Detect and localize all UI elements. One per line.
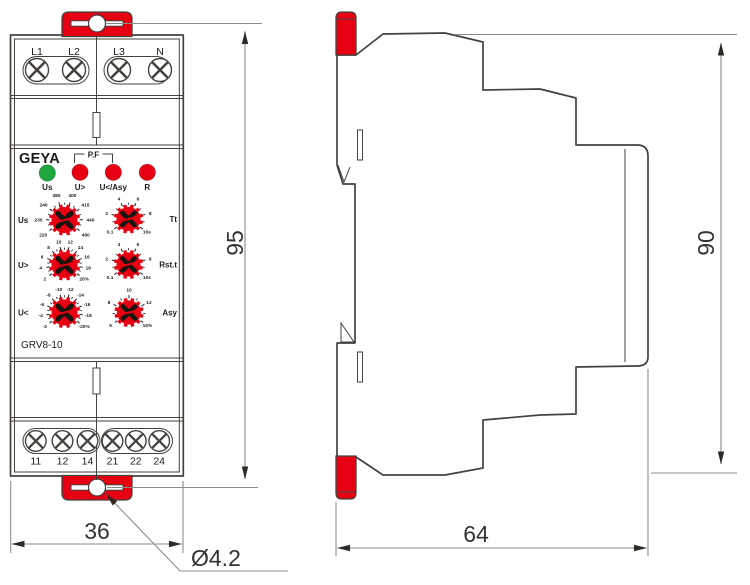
dial-scale-value: -18 [85,313,92,319]
dial-scale-value: 8 [108,300,111,306]
dial-label: U< [18,308,29,317]
terminal-label: 14 [82,456,94,468]
led-label: Us [42,183,53,192]
dim-value-95: 95 [222,230,248,256]
front-view-relay: L1L2L3N GEYA P.F UsU>U</AsyR 22023024038… [11,12,184,500]
dial-label: Tt [169,215,177,224]
dial-scale-value: 20% [79,276,89,282]
dial-scale-value: 10 [126,288,132,294]
dim-value-36: 36 [84,518,110,544]
dial-scale-value: 0.1 [107,275,114,281]
dial-scale-value: -16 [84,302,91,308]
top-mounting-tab [62,12,132,37]
relay-dimension-drawing: L1L2L3N GEYA P.F UsU>U</AsyR 22023024038… [0,0,750,585]
dial-scale-value: 14 [78,245,84,251]
dial-scale-value: -10 [55,287,62,293]
dial-label: Asy [162,308,177,317]
dial-label: Us [18,216,29,225]
terminal-label: 12 [57,456,69,468]
dial-scale-value: 12 [68,239,74,245]
brand-logo: GEYA [19,151,60,167]
terminal-label: L1 [31,46,43,58]
dial-scale-value: -8 [46,292,51,298]
dim-value-90: 90 [693,230,719,256]
marking-slot-upper [93,113,100,138]
dial-scale-value: 15% [143,323,153,329]
dial-scale-value: 12 [146,300,152,306]
dial-scale-value: -2 [43,324,48,330]
led-label: U</Asy [100,183,128,192]
din-clip-notch-bottom [341,323,354,342]
dial-scale-value: 6 [137,242,140,248]
dial-scale-value: 220 [39,233,47,239]
terminal-label: 21 [107,456,119,468]
dial-scale-value: 240 [40,202,48,208]
dial-scale-value: -14 [77,292,84,298]
dial-scale-value: 460 [82,233,90,239]
dial-scale-value: 6 [41,254,44,260]
dial-scale-value: -6 [40,302,45,308]
model-label: GRV8-10 [21,340,63,351]
mounting-hole [89,479,106,496]
dim-value-hole: Ø4.2 [191,545,241,571]
dial-scale-value: 16 [84,254,90,260]
dial-scale-value: 10s [143,275,151,281]
dial-scale-value: 8 [47,245,50,251]
dimension-hole-diameter: Ø4.2 [106,494,288,571]
terminal-label: L3 [113,46,125,58]
dial-scale-value: 415 [81,202,89,208]
dial-scale-value: -12 [67,287,74,293]
dial-scale-value: 5 [109,323,112,329]
led-label: U> [75,183,86,192]
terminal-label: 22 [130,456,142,468]
dial-scale-value: 4 [118,196,121,202]
dial-scale-value: 18 [86,266,92,272]
dial-scale-value: 10 [56,239,62,245]
dial-label: U> [18,261,29,270]
side-top-tab [336,12,356,55]
dial-scale-value: 4 [39,266,42,272]
led-label: R [144,183,150,192]
side-body-outline [337,33,648,475]
side-view-relay [336,12,648,499]
technical-drawing-page: L1L2L3N GEYA P.F UsU>U</AsyR 22023024038… [0,0,750,585]
dial-label: Rst.t [159,260,177,269]
dial-scale-value: 2 [44,276,47,282]
terminal-label: 24 [153,456,165,468]
dial-scale-value: 380 [53,193,61,199]
dial-scale-value: 4 [118,242,121,248]
pf-label: P.F [88,151,100,160]
side-bottom-tab [336,456,356,499]
dial-scale-value: 6 [137,196,140,202]
dial-scale-value: -4 [39,313,44,319]
dial-scale-value: -20% [79,324,91,330]
dial-scale-value: 2 [105,211,108,217]
dial-scale-value: 400 [68,193,76,199]
dial-scale-value: 230 [34,217,42,223]
dial-scale-value: 440 [86,217,94,223]
dial-scale-value: 0.1 [107,230,114,236]
side-slot-upper [358,130,363,160]
dial-scale-value: 8 [149,256,152,262]
dial-scale-value: 10s [143,230,151,236]
dim-value-64: 64 [463,521,489,547]
terminal-label: N [156,46,164,58]
marking-slot-lower [93,368,100,394]
dial-scale-value: 2 [105,256,108,262]
dial-scale-value: 8 [149,211,152,217]
mounting-hole [89,15,106,32]
side-slot-lower [358,352,363,382]
terminal-label: L2 [68,46,80,58]
terminal-label: 11 [30,456,41,468]
